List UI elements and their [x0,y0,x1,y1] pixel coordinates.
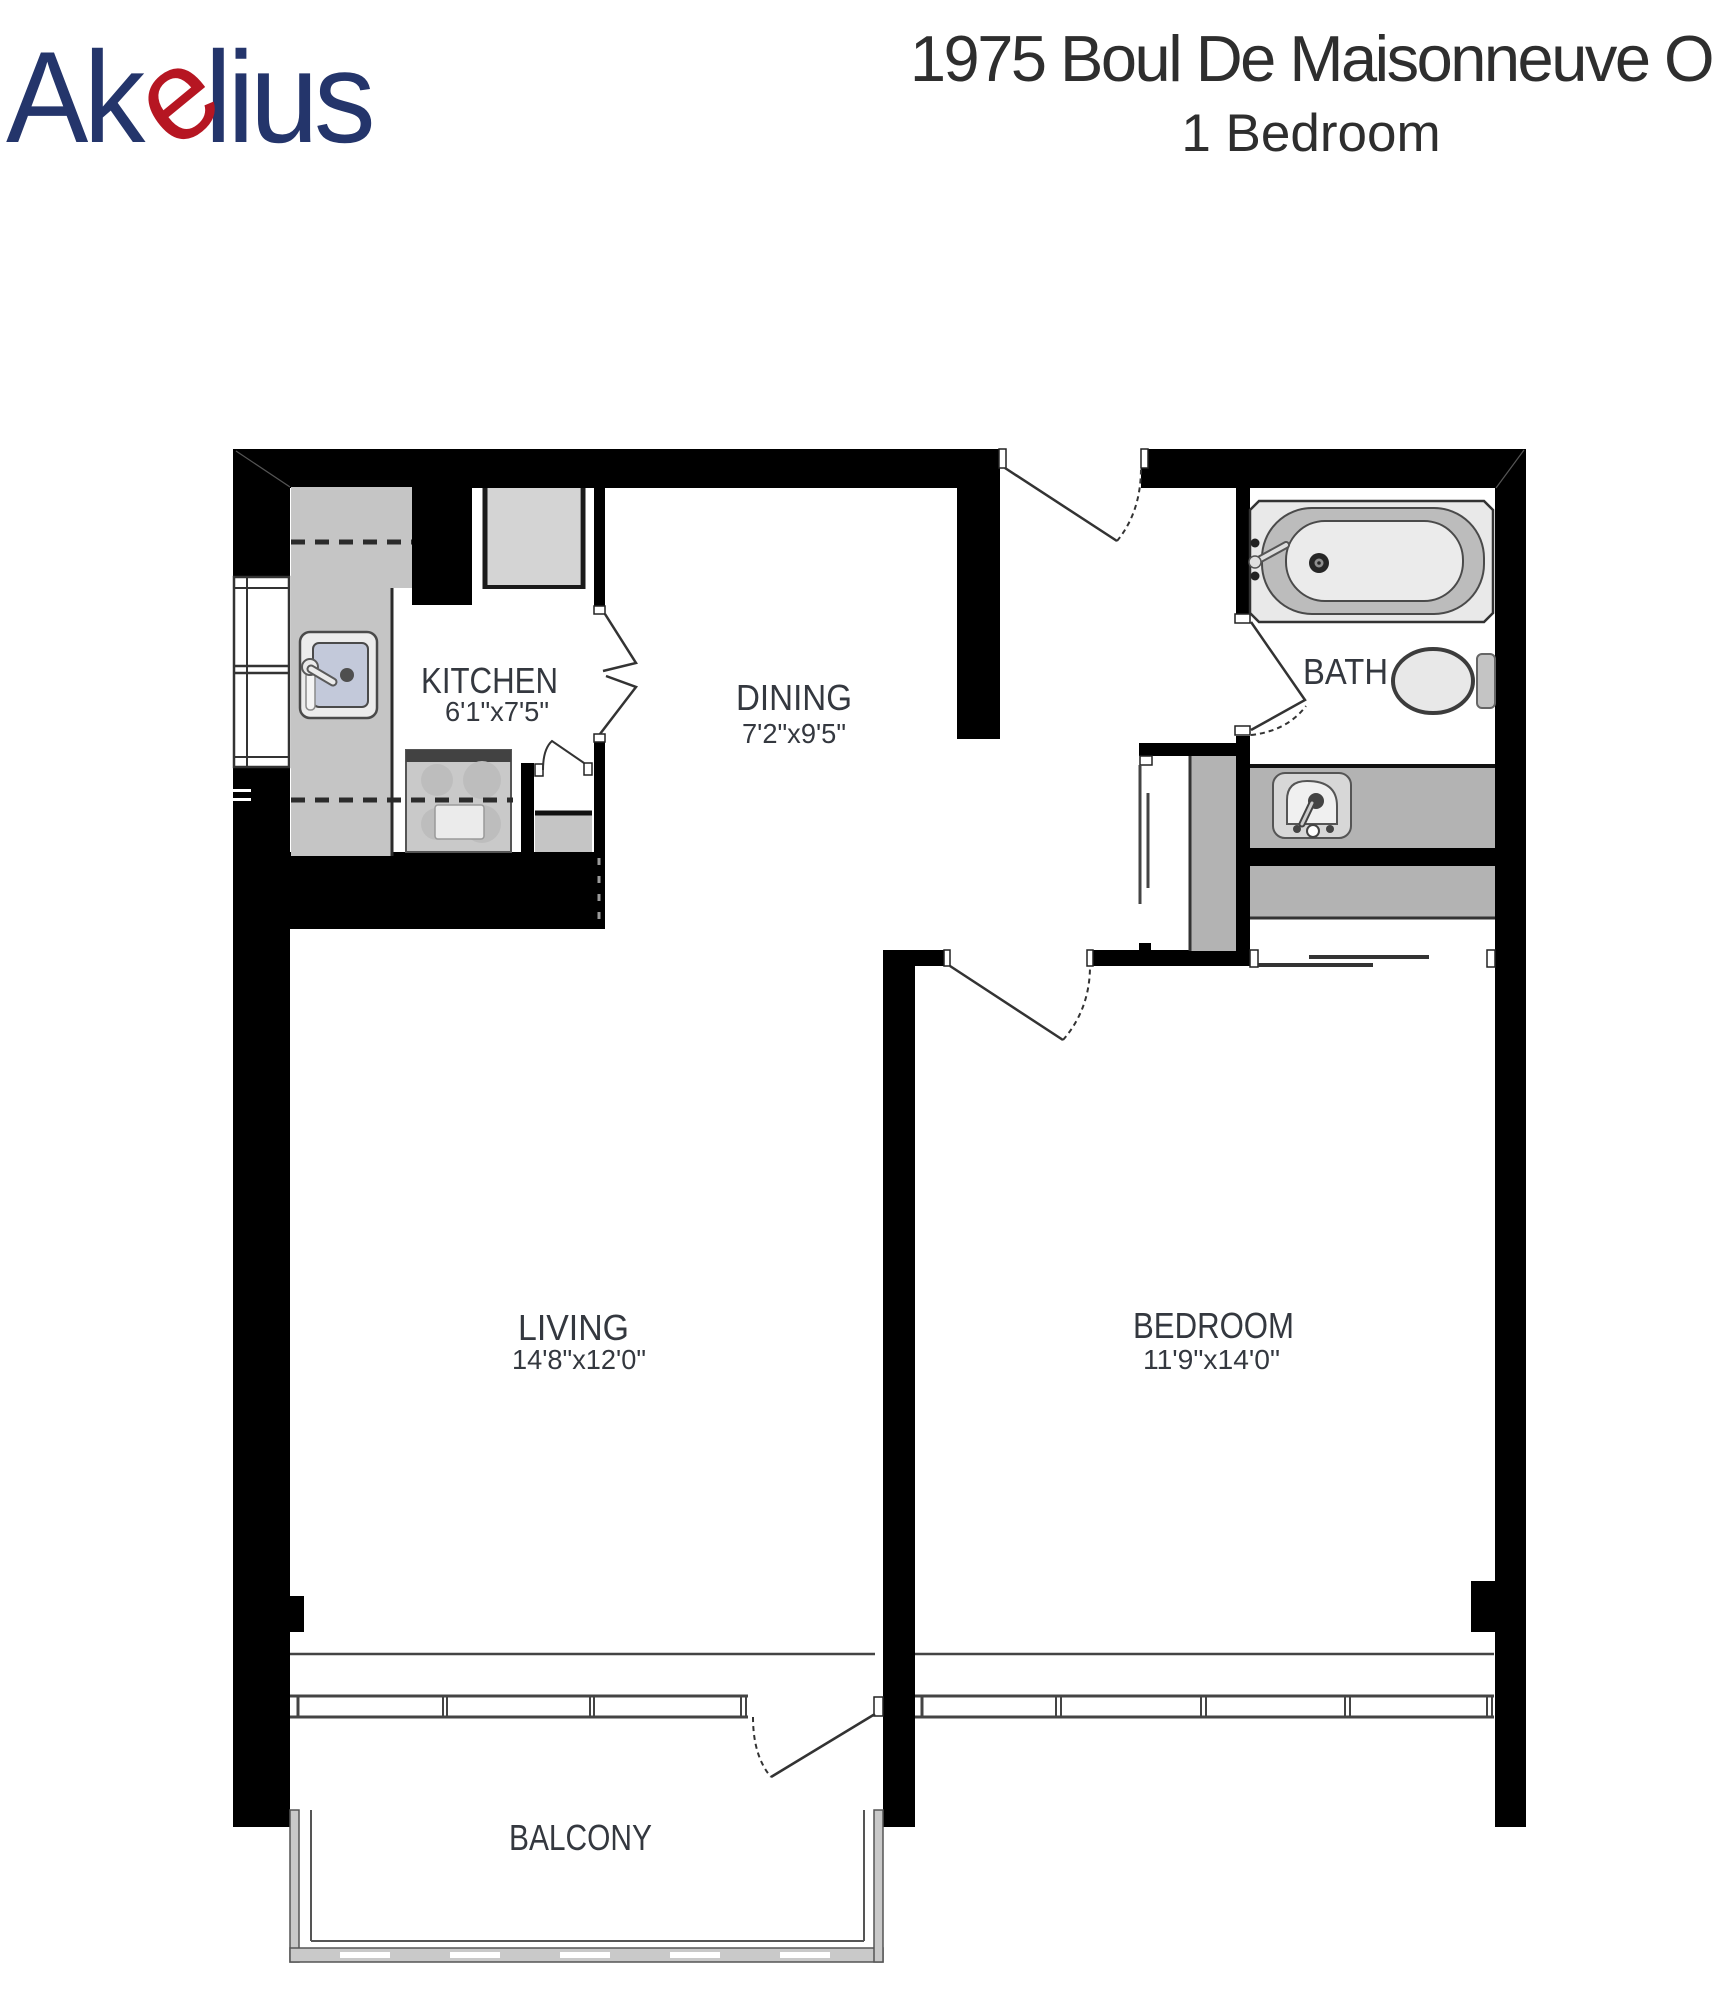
svg-text:11'9"x14'0": 11'9"x14'0" [1143,1344,1280,1375]
svg-text:LIVING: LIVING [518,1307,629,1348]
svg-text:BEDROOM: BEDROOM [1133,1305,1294,1346]
svg-text:BALCONY: BALCONY [509,1817,652,1858]
svg-text:KITCHEN: KITCHEN [421,660,558,701]
svg-text:6'1"x7'5": 6'1"x7'5" [445,696,549,727]
svg-text:DINING: DINING [736,677,852,718]
svg-text:14'8"x12'0": 14'8"x12'0" [512,1344,646,1375]
svg-text:7'2"x9'5": 7'2"x9'5" [742,718,846,749]
svg-text:BATH: BATH [1303,651,1388,692]
